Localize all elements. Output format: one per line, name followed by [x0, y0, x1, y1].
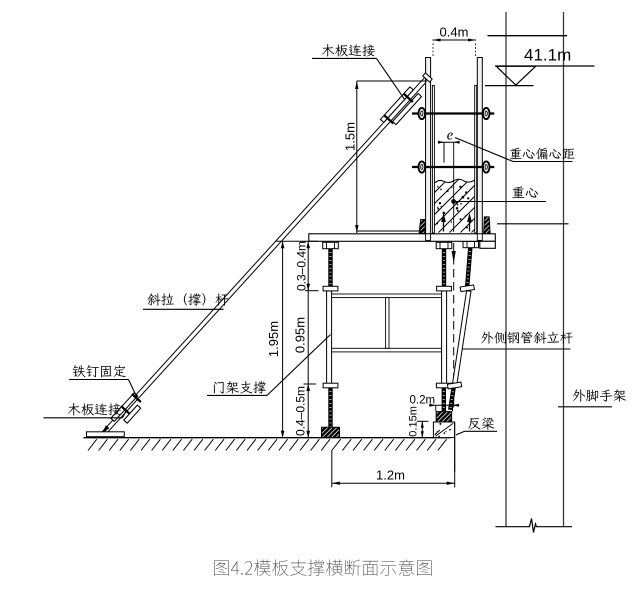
svg-text:e: e — [447, 128, 454, 144]
svg-text:0.4–0.5m: 0.4–0.5m — [293, 386, 307, 436]
svg-text:1.95m: 1.95m — [266, 321, 281, 357]
svg-text:0.3–0.4m: 0.3–0.4m — [295, 241, 309, 291]
svg-text:1.2m: 1.2m — [376, 468, 405, 483]
svg-text:41.1m: 41.1m — [524, 46, 571, 65]
svg-text:0.2m: 0.2m — [410, 395, 436, 407]
svg-text:1.5m: 1.5m — [342, 122, 357, 151]
svg-text:0.15m: 0.15m — [408, 406, 420, 437]
svg-text:0.4m: 0.4m — [440, 25, 469, 40]
svg-text:0.95m: 0.95m — [293, 317, 308, 353]
